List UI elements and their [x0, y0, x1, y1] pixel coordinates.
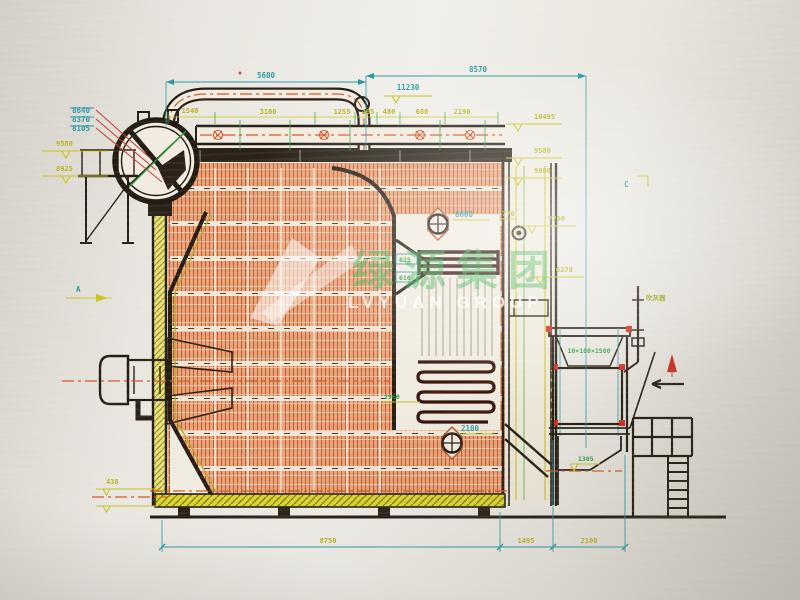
dim-1255: 1255 — [334, 108, 351, 116]
section-cone-icon — [667, 354, 677, 372]
elev-8640: 8640 — [72, 106, 91, 115]
elev-1305: 1305 — [578, 455, 594, 463]
dim-2190: 2190 — [454, 108, 471, 116]
elev-10495: 10495 — [534, 113, 555, 121]
elev-9580: 9580 — [534, 147, 551, 155]
elev-8105: 8105 — [72, 124, 90, 133]
dim-770: 770 — [502, 210, 515, 218]
base-strip — [155, 494, 505, 507]
watermark-en-text: LVYUAN GROUP — [348, 293, 544, 312]
roof-band — [150, 148, 512, 162]
dim-8750: 8750 — [320, 537, 337, 545]
elev-left-8925: 8925 — [56, 165, 73, 173]
dim-680: 680 — [416, 108, 429, 116]
watermark-cn-text: 绿源集团 — [352, 246, 560, 295]
boiler-engineering-drawing: 5600 8570 11230 1540 3100 1255 465 480 6… — [0, 0, 800, 600]
elev-8370: 8370 — [72, 115, 91, 124]
ladder — [668, 456, 688, 517]
flow-arrow-icon — [652, 380, 684, 388]
dim-1540: 1540 — [182, 107, 199, 115]
section-marker-c: C — [624, 180, 629, 189]
access-platform — [630, 352, 692, 517]
economizer-coils — [556, 368, 622, 424]
dim-3100: 3100 — [260, 108, 277, 116]
outlet-hopper — [558, 436, 621, 505]
elev-left-9580: 9580 — [56, 140, 73, 148]
section-arrow-icon — [96, 294, 108, 302]
dust-speck — [239, 72, 242, 75]
economizer-spec-label: 10×100×1500 — [567, 347, 610, 355]
dim-480: 480 — [383, 108, 396, 116]
dim-11230: 11230 — [397, 83, 420, 92]
section-marker-a: A — [76, 285, 81, 294]
dim-1495: 1495 — [518, 537, 535, 545]
boiler-body — [150, 148, 726, 517]
dim-8570: 8570 — [469, 65, 488, 74]
elev-7700: 7700 — [548, 215, 565, 223]
photographed-boiler-drawing: 5600 8570 11230 1540 3100 1255 465 480 6… — [0, 0, 800, 600]
elev-438: 438 — [106, 478, 119, 486]
soot-blower-label: 吹灰器 — [646, 293, 666, 302]
dim-5600: 5600 — [257, 71, 276, 80]
dim-2100: 2100 — [581, 537, 598, 545]
dim-2960: 2960 — [384, 393, 400, 401]
superheater-coil — [418, 362, 494, 422]
elev-9080: 9080 — [534, 167, 551, 175]
chain-dims: 1540 3100 1255 465 480 680 2190 — [168, 107, 498, 124]
left-elevations: 9580 8925 — [42, 140, 108, 183]
dim-8600: 8600 — [455, 210, 474, 219]
dim-2100-manhole: 2100 — [461, 424, 480, 433]
dim-465: 465 — [362, 108, 375, 116]
